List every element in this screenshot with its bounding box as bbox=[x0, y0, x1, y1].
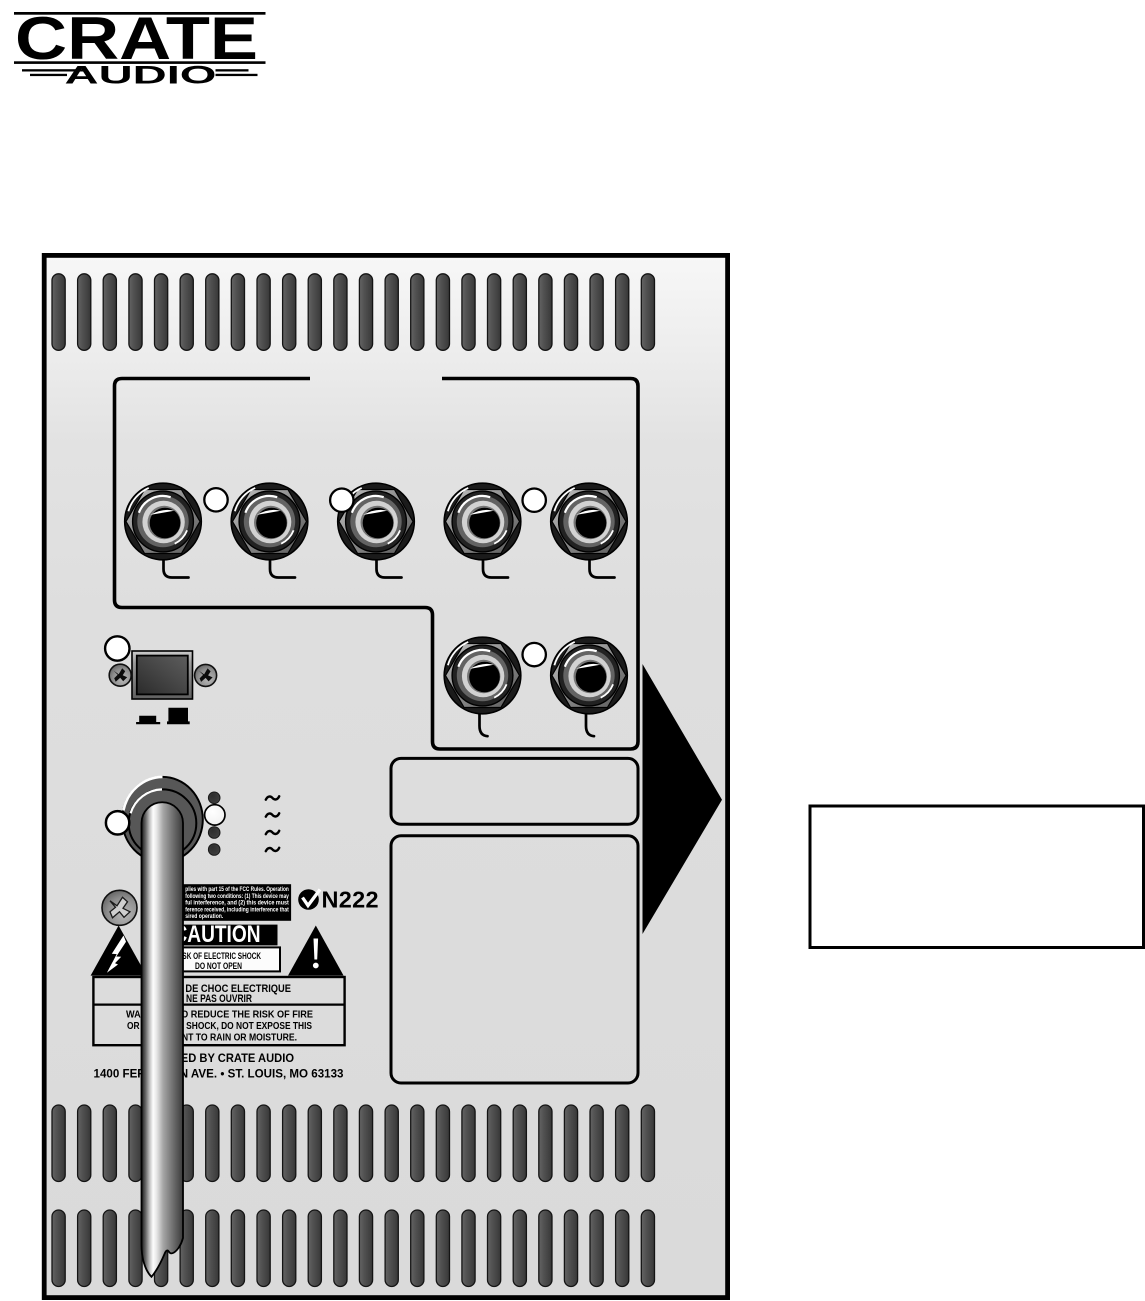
svg-text:sired operation.: sired operation. bbox=[185, 914, 223, 920]
svg-text:CAUTION: CAUTION bbox=[174, 921, 261, 948]
svg-text:NE PAS OUVRIR: NE PAS OUVRIR bbox=[186, 993, 252, 1005]
svg-text:DO NOT OPEN: DO NOT OPEN bbox=[195, 961, 242, 971]
svg-text:plies with part 15 of the FCC: plies with part 15 of the FCC Rules. Ope… bbox=[185, 887, 289, 893]
svg-text:ference received, including in: ference received, including interference… bbox=[185, 907, 288, 913]
svg-text:ful interference, and (2): ful interference, and (2) this device mu… bbox=[185, 901, 288, 907]
svg-text:following two conditions: (1): following two conditions: (1) This devic… bbox=[185, 894, 289, 900]
svg-text:1400 FERGUSON AVE. • ST. LOUIS: 1400 FERGUSON AVE. • ST. LOUIS, MO 63133 bbox=[94, 1066, 344, 1080]
svg-text:AUDIO: AUDIO bbox=[65, 62, 217, 90]
svg-text:RISK OF ELECTRIC SHOCK: RISK OF ELECTRIC SHOCK bbox=[176, 951, 261, 961]
svg-text:N222: N222 bbox=[322, 887, 379, 913]
